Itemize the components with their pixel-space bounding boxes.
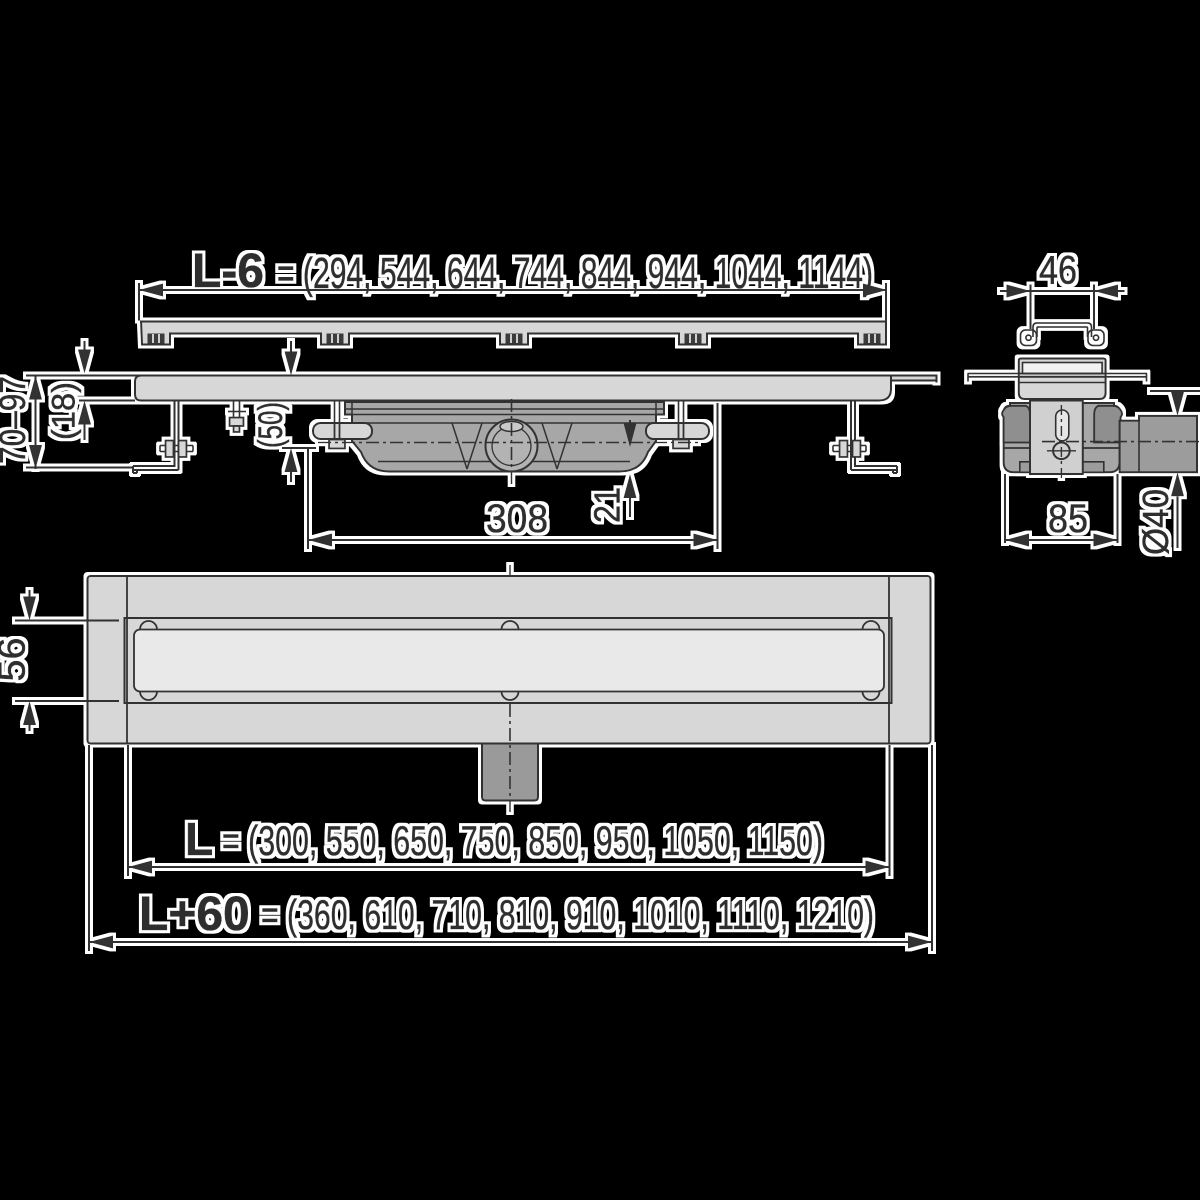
svg-text:46: 46 [1039, 249, 1077, 293]
svg-text:56: 56 [0, 638, 34, 682]
svg-text:308: 308 [486, 497, 548, 541]
svg-text:Ø40: Ø40 [1135, 489, 1176, 555]
svg-text:L+60: L+60 [139, 888, 250, 941]
svg-text:= (300, 550, 650, 750, 850, 95: = (300, 550, 650, 750, 850, 950, 1050, 1… [222, 817, 823, 864]
svg-text:(50): (50) [252, 402, 290, 448]
svg-text:L: L [185, 813, 213, 865]
svg-text:(18): (18) [46, 382, 82, 440]
svg-text:= (360, 610, 710, 810, 910, 10: = (360, 610, 710, 810, 910, 1010, 1110, … [261, 891, 874, 938]
svg-text:70–97: 70–97 [0, 376, 33, 464]
svg-text:21: 21 [587, 487, 628, 523]
svg-text:85: 85 [1048, 497, 1088, 541]
